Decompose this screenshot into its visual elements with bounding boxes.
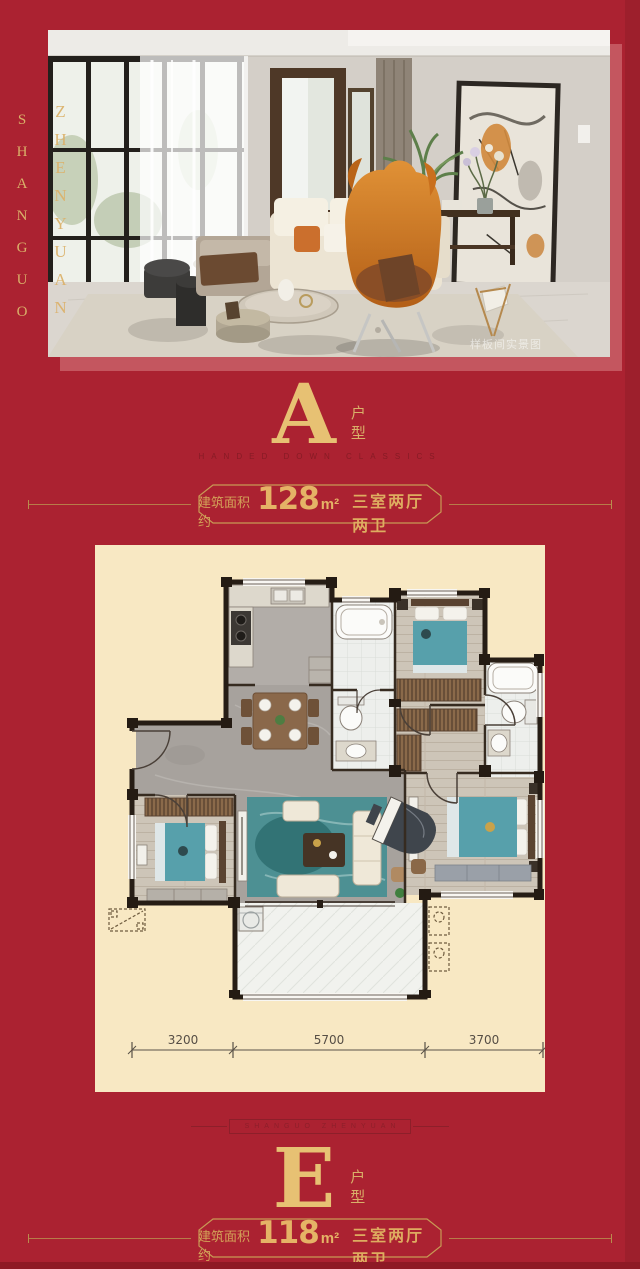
badge-line bbox=[29, 504, 191, 505]
photo-artwork bbox=[451, 81, 560, 290]
unit-e-letter: E bbox=[273, 1148, 336, 1212]
photo-watermark: 样板间实景图 bbox=[470, 336, 542, 352]
floorplan-panel: 3200 5700 3700 bbox=[95, 545, 545, 1092]
area-label: 建筑面积约 bbox=[198, 492, 252, 530]
unit-a-suffix: 户型 bbox=[347, 405, 368, 445]
unit-a-area-badge: 建筑面积约 128 m² 三室两厅两卫 bbox=[28, 484, 612, 524]
unit-e-suffix: 户型 bbox=[346, 1169, 367, 1209]
unit-e-heading: E 户型 bbox=[0, 1148, 640, 1212]
divider-line bbox=[413, 1126, 449, 1127]
badge-end-tick bbox=[611, 1234, 612, 1243]
floorplan: 3200 5700 3700 bbox=[95, 545, 545, 1092]
badge-box: 建筑面积约 118 m² 三室两厅两卫 bbox=[198, 1218, 442, 1258]
area-label: 建筑面积约 bbox=[198, 1226, 252, 1264]
photo-chaise bbox=[196, 236, 276, 296]
floorplan-balcony bbox=[239, 907, 263, 931]
badge-line bbox=[29, 1238, 191, 1239]
bottom-edge-band bbox=[0, 1262, 640, 1269]
floorplan-dimensions: 3200 5700 3700 bbox=[128, 1033, 545, 1058]
right-edge-band bbox=[625, 0, 640, 1269]
showroom-photo bbox=[48, 30, 610, 357]
floorplan-floors bbox=[132, 582, 540, 997]
rooms-label: 三室两厅两卫 bbox=[352, 488, 442, 536]
unit-e-area-badge: 建筑面积约 118 m² 三室两厅两卫 bbox=[28, 1218, 612, 1258]
unit-a-heading: A 户型 bbox=[0, 382, 640, 448]
light-switch bbox=[578, 125, 590, 143]
badge-line bbox=[449, 1238, 611, 1239]
unit-a-tagline: HANDED DOWN CLASSICS bbox=[0, 452, 640, 461]
brand-vertical-photo: ZHENYUAN bbox=[50, 102, 70, 326]
floorplan-dining bbox=[241, 693, 319, 749]
badge-end-tick bbox=[611, 500, 612, 509]
poster-page: 样板间实景图 SHANGUO ZHENYUAN A 户型 HANDED DOWN… bbox=[0, 0, 640, 1269]
unit-a-letter: A bbox=[272, 384, 336, 448]
dim-right: 3700 bbox=[469, 1033, 500, 1047]
badge-box: 建筑面积约 128 m² 三室两厅两卫 bbox=[198, 484, 442, 524]
badge-line bbox=[449, 504, 611, 505]
dim-mid: 5700 bbox=[314, 1033, 345, 1047]
brand-vertical-left: SHANGUO bbox=[13, 112, 30, 336]
dim-left: 3200 bbox=[168, 1033, 199, 1047]
divider-line bbox=[191, 1126, 227, 1127]
